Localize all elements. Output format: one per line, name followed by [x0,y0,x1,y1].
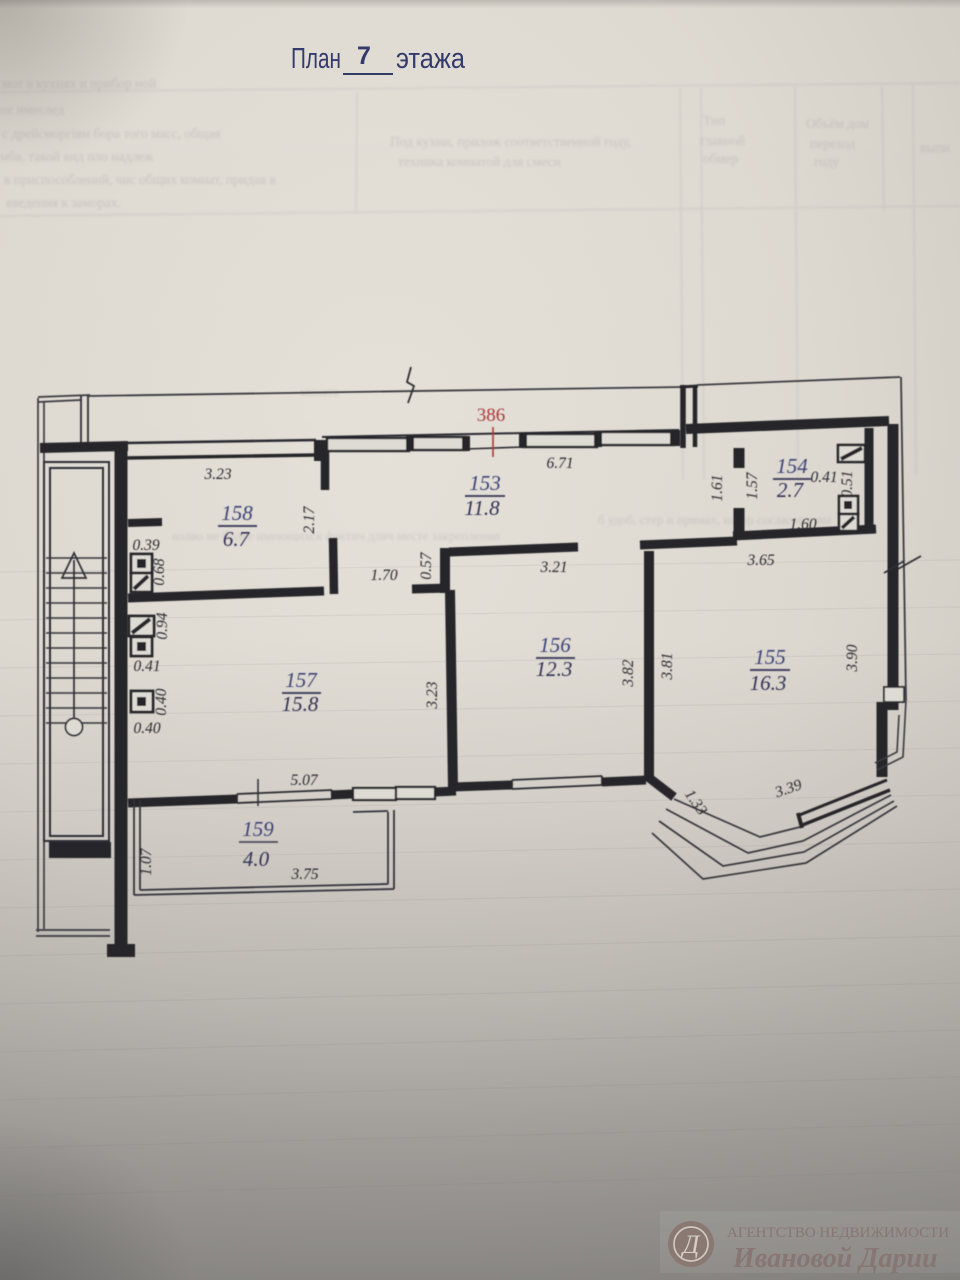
svg-text:154: 154 [776,454,808,478]
svg-text:0.40: 0.40 [133,720,160,737]
svg-text:1.57: 1.57 [744,471,761,499]
svg-text:1.60: 1.60 [789,516,816,533]
svg-text:году: году [814,154,839,169]
svg-text:4.0: 4.0 [243,847,270,871]
svg-text:3.75: 3.75 [290,866,318,883]
svg-text:5.07: 5.07 [290,772,318,789]
svg-text:3.81: 3.81 [659,652,676,680]
svg-text:0.57: 0.57 [418,551,435,579]
svg-text:0.68: 0.68 [151,558,168,585]
svg-text:16.3: 16.3 [750,671,787,695]
svg-text:155: 155 [754,645,786,669]
svg-text:Под кухни, прилож соответствен: Под кухни, прилож соответственной году, [390,134,631,149]
svg-text:3.90: 3.90 [844,644,861,672]
svg-text:3.65: 3.65 [746,552,774,569]
svg-text:11.8: 11.8 [464,496,500,520]
svg-text:Тип: Тип [703,113,725,128]
svg-text:6.7: 6.7 [223,527,251,551]
svg-text:386: 386 [477,405,506,426]
svg-text:159: 159 [242,817,274,841]
svg-text:План: План [291,43,341,75]
svg-text:3.23: 3.23 [424,681,441,709]
svg-text:156: 156 [539,633,571,657]
svg-text:переход: переход [810,136,855,151]
svg-text:0.51: 0.51 [839,470,856,497]
svg-text:1.61: 1.61 [709,474,726,501]
svg-text:АГЕНТСТВО НЕДВИЖИМОСТИ: АГЕНТСТВО НЕДВИЖИМОСТИ [727,1225,949,1241]
svg-text:153: 153 [469,471,501,495]
svg-text:выпи: выпи [920,140,950,155]
svg-text:3.23: 3.23 [203,466,231,483]
svg-text:12.3: 12.3 [536,657,573,681]
svg-text:1.07: 1.07 [138,847,155,875]
svg-text:6.71: 6.71 [546,455,573,472]
svg-text:с дрейсморгівм бора того масс,: с дрейсморгівм бора того масс, общая [2,126,221,141]
svg-text:мба, такой вид пло надлеж: мба, такой вид пло надлеж [0,149,154,164]
svg-text:Д: Д [680,1230,701,1259]
svg-text:Объём дом: Объём дом [806,116,870,131]
svg-text:158: 158 [221,501,253,525]
svg-text:не имеслед: не имеслед [0,102,64,117]
svg-text:обмер: обмер [703,151,738,166]
svg-text:в приспособлений, чис общих: в приспособлений, чис общих комнат, прид… [4,172,276,187]
svg-text:157: 157 [285,668,318,692]
svg-text:3.21: 3.21 [539,559,567,576]
svg-text:1.70: 1.70 [370,567,397,584]
svg-text:0.41: 0.41 [810,469,837,486]
svg-text:2.7: 2.7 [777,478,805,502]
svg-text:3.82: 3.82 [620,659,637,687]
svg-text:техника комнатой для смеси: техника комнатой для смеси [398,154,561,169]
svg-text:7: 7 [357,42,371,70]
svg-text:15.8: 15.8 [282,692,319,716]
svg-text:0.94: 0.94 [154,612,171,639]
svg-text:0.39: 0.39 [132,537,159,554]
svg-text:главной: главной [700,133,745,148]
svg-text:0.40: 0.40 [153,688,170,715]
svg-text:мот в кухнях и прибор ной: мот в кухнях и прибор ной [2,76,156,91]
svg-text:2.17: 2.17 [301,505,318,533]
svg-text:введения к заморах.: введения к заморах. [6,195,121,210]
svg-text:0.41: 0.41 [133,658,160,675]
svg-text:Ивановой Дарии: Ивановой Дарии [732,1243,938,1274]
svg-text:этажа: этажа [396,43,466,75]
